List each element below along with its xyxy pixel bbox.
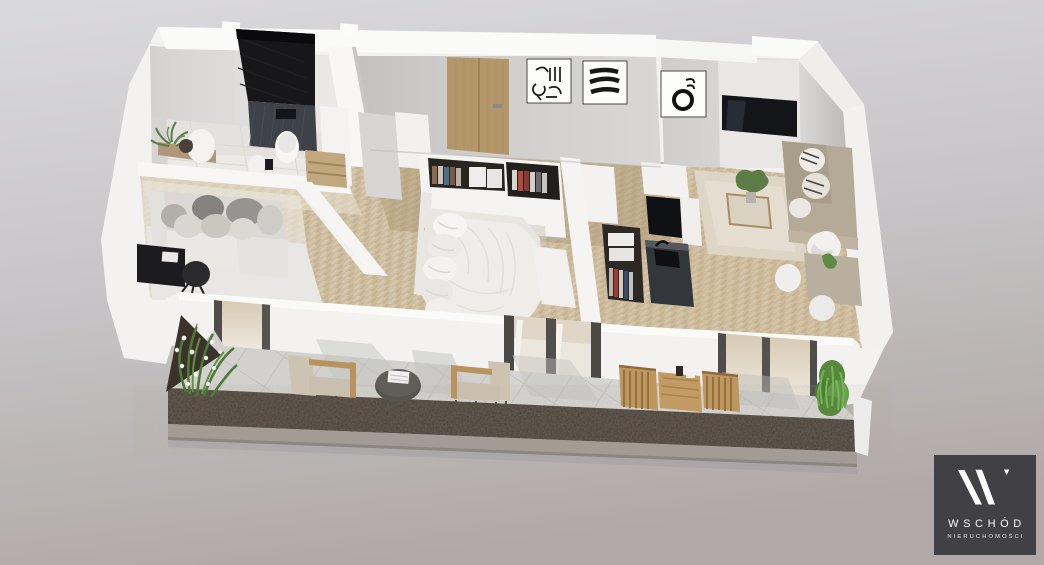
- svg-text:NIERUCHOMOŚCI: NIERUCHOMOŚCI: [947, 532, 1024, 540]
- svg-text:WSCHÓD: WSCHÓD: [948, 517, 1026, 530]
